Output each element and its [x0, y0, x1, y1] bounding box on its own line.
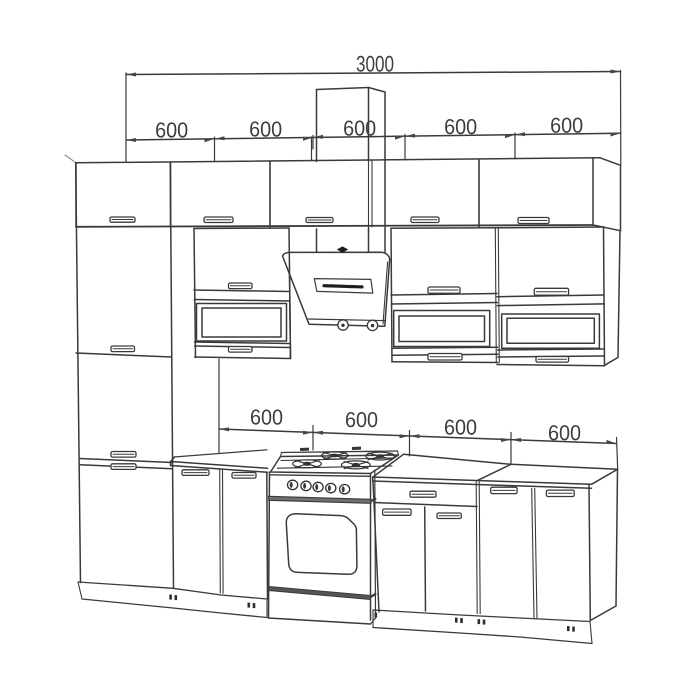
svg-text:600: 600: [444, 416, 477, 440]
svg-text:600: 600: [345, 408, 378, 432]
svg-text:3000: 3000: [356, 51, 394, 76]
svg-text:600: 600: [155, 118, 188, 142]
svg-text:600: 600: [548, 421, 581, 445]
svg-text:600: 600: [444, 115, 477, 139]
svg-text:600: 600: [343, 116, 376, 140]
svg-text:600: 600: [550, 114, 583, 138]
svg-text:600: 600: [250, 405, 283, 429]
svg-text:600: 600: [249, 117, 282, 141]
